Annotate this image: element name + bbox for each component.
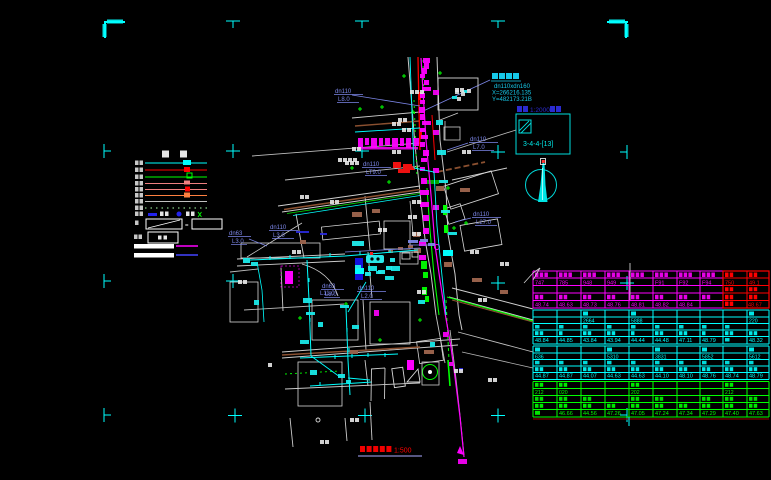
svg-text:44.63: 44.63	[631, 374, 645, 380]
svg-text:L11.0: L11.0	[320, 291, 335, 297]
svg-text:3831: 3831	[655, 355, 667, 361]
svg-text:47.63: 47.63	[749, 411, 763, 417]
svg-text:44.44: 44.44	[631, 338, 645, 344]
svg-text:48.74: 48.74	[535, 303, 549, 309]
svg-text:47.24: 47.24	[655, 411, 669, 417]
svg-text:1:2000: 1:2000	[530, 107, 550, 114]
svg-text:47.26: 47.26	[607, 411, 621, 417]
svg-text:L2.0: L2.0	[361, 294, 373, 300]
svg-text:44.07: 44.07	[583, 374, 597, 380]
svg-text:L3.0: L3.0	[232, 239, 244, 245]
svg-text:48.74: 48.74	[725, 374, 739, 380]
svg-text:dn110: dn110	[270, 225, 287, 231]
svg-text:dn110: dn110	[335, 89, 352, 95]
svg-text:48.63: 48.63	[559, 303, 573, 309]
svg-text:48.84: 48.84	[535, 338, 549, 344]
svg-text:44.85: 44.85	[559, 338, 573, 344]
svg-text:dn110: dn110	[358, 286, 375, 292]
svg-text:dn110: dn110	[363, 162, 380, 168]
svg-text:=: =	[185, 223, 189, 229]
svg-text:F92: F92	[679, 281, 688, 287]
svg-text:48.10: 48.10	[679, 374, 693, 380]
svg-text:48.79: 48.79	[702, 338, 716, 344]
svg-text:44.56: 44.56	[583, 411, 597, 417]
svg-text:L3.0: L3.0	[273, 233, 285, 239]
svg-text:L7.0: L7.0	[473, 145, 485, 151]
svg-text:44.63: 44.63	[607, 374, 621, 380]
svg-text:5612: 5612	[749, 355, 761, 361]
svg-text:2664: 2664	[583, 319, 595, 325]
svg-text:47.11: 47.11	[679, 338, 692, 344]
svg-text:47.05: 47.05	[631, 411, 645, 417]
svg-text:46.66: 46.66	[559, 411, 573, 417]
svg-text:212: 212	[535, 390, 544, 396]
svg-text:dn110xdn160: dn110xdn160	[494, 84, 531, 90]
svg-text:5310: 5310	[607, 355, 619, 361]
svg-text:F94: F94	[702, 281, 711, 287]
svg-text:L8.0: L8.0	[338, 97, 350, 103]
svg-text:48.81: 48.81	[631, 303, 645, 309]
svg-text:5852: 5852	[702, 355, 714, 361]
svg-text:48.79: 48.79	[749, 374, 763, 380]
svg-text:785: 785	[559, 281, 568, 287]
svg-text:48.73: 48.73	[583, 303, 597, 309]
svg-text:44.87: 44.87	[559, 374, 573, 380]
svg-text:43.94: 43.94	[607, 338, 621, 344]
svg-text:Y=482173.21B: Y=482173.21B	[492, 97, 532, 103]
svg-text:020: 020	[559, 390, 568, 396]
svg-text:948: 948	[583, 281, 592, 287]
svg-text:48.32: 48.32	[749, 338, 763, 344]
svg-text:49.1: 49.1	[749, 281, 760, 287]
svg-text:48.67: 48.67	[748, 303, 762, 309]
svg-text:dn63: dn63	[322, 284, 336, 290]
svg-text:47.34: 47.34	[679, 411, 693, 417]
svg-text:5888: 5888	[631, 319, 643, 325]
svg-text:44.48: 44.48	[655, 338, 669, 344]
svg-text:F91: F91	[655, 281, 664, 287]
svg-text:44.10: 44.10	[655, 374, 669, 380]
svg-text:949: 949	[607, 281, 616, 287]
svg-text:48.84: 48.84	[679, 303, 693, 309]
svg-text:48.82: 48.82	[655, 303, 669, 309]
svg-text:44.87: 44.87	[535, 374, 549, 380]
svg-text:47.40: 47.40	[725, 411, 739, 417]
svg-text:750: 750	[725, 281, 734, 287]
svg-text:48.76: 48.76	[607, 303, 621, 309]
svg-text:636: 636	[535, 355, 544, 361]
svg-text:212: 212	[725, 390, 734, 396]
svg-text:dn110: dn110	[470, 137, 487, 143]
svg-text:dn63: dn63	[229, 231, 243, 237]
svg-text:dn110: dn110	[473, 212, 490, 218]
svg-text:X=266216.135: X=266216.135	[492, 91, 532, 97]
svg-text:202: 202	[631, 390, 640, 396]
svg-text:47.29: 47.29	[702, 411, 716, 417]
svg-text:1:500: 1:500	[394, 448, 412, 455]
svg-text:3-4-4-[13]: 3-4-4-[13]	[523, 141, 553, 148]
svg-text:43.84: 43.84	[583, 338, 597, 344]
svg-text:LT9.0: LT9.0	[366, 170, 382, 176]
svg-text:48.76: 48.76	[702, 374, 716, 380]
svg-text:747: 747	[535, 281, 544, 287]
svg-text:220: 220	[749, 319, 758, 325]
svg-text:L27.0: L27.0	[476, 220, 492, 226]
